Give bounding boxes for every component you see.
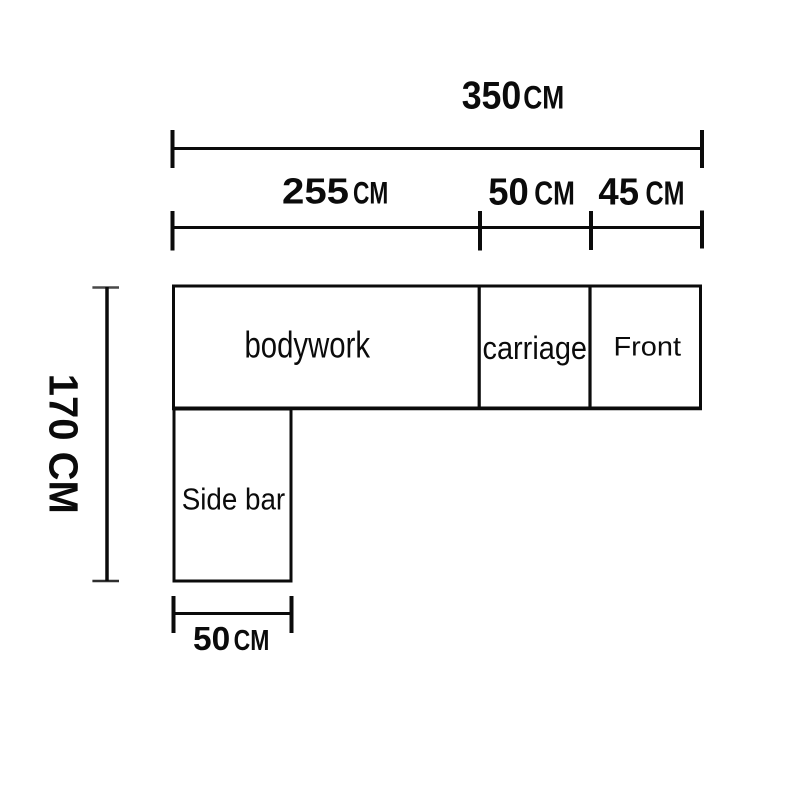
svg-text:carriage: carriage: [483, 330, 588, 366]
svg-text:45: 45: [598, 172, 639, 214]
svg-text:255: 255: [282, 171, 349, 212]
svg-text:170 CM: 170 CM: [40, 374, 86, 514]
svg-text:350: 350: [462, 75, 522, 118]
svg-text:CM: CM: [523, 79, 564, 116]
svg-text:Front: Front: [614, 332, 682, 362]
svg-text:CM: CM: [353, 175, 388, 211]
svg-text:50: 50: [193, 620, 230, 657]
svg-text:CM: CM: [534, 175, 575, 212]
svg-text:CM: CM: [234, 625, 270, 657]
svg-text:50: 50: [488, 171, 529, 213]
svg-text:CM: CM: [646, 176, 685, 213]
svg-text:bodywork: bodywork: [245, 324, 371, 366]
svg-text:Side bar: Side bar: [182, 482, 286, 517]
